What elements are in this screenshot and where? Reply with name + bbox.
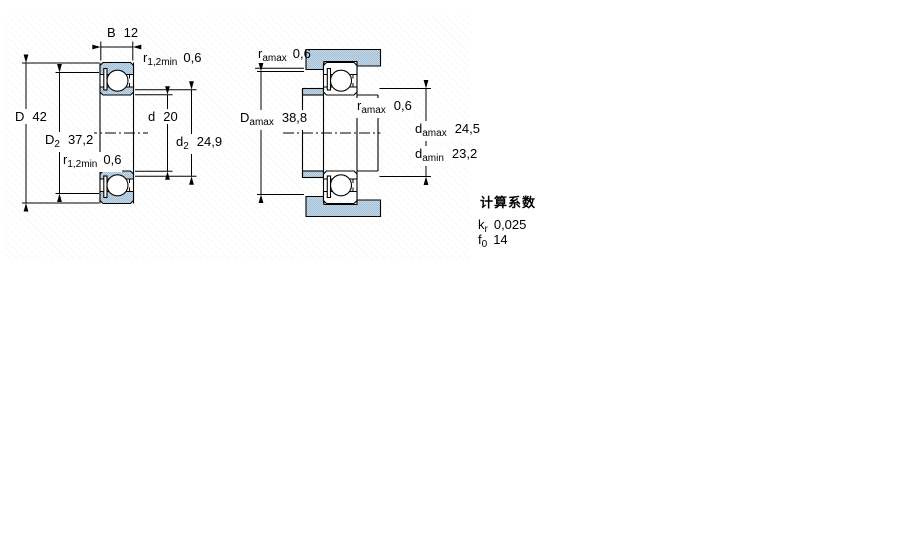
dim-value: 24,9 (197, 134, 222, 149)
dim-d-label: d20 (147, 109, 179, 124)
dim-value: 20 (163, 109, 177, 124)
calculation-factors-title: 计算系数 (479, 195, 537, 210)
shaft-shoulder-top (303, 89, 324, 96)
dim-value: 0,6 (394, 98, 412, 113)
factor-subscript: 0 (482, 239, 488, 250)
dim-damax-label: damax24,5 (414, 121, 481, 141)
dim-value: 0,6 (183, 50, 201, 65)
dim-value: 37,2 (68, 132, 93, 147)
dim-subscript: amax (422, 128, 446, 139)
ball-bottom (107, 175, 128, 196)
dim-subscript: amin (422, 153, 444, 164)
dim-subscript: amax (262, 53, 286, 64)
dim-r12min-mid-label: r1,2min0,6 (62, 152, 122, 172)
factor-value: 0,025 (494, 217, 527, 232)
drawing-linework (0, 0, 900, 560)
dim-subscript: 2 (183, 141, 189, 152)
dim-value: 23,2 (452, 146, 477, 161)
dim-damin-label: damin23,2 (414, 146, 478, 166)
dim-symbol: D (15, 109, 24, 124)
factor-value: 14 (493, 232, 507, 247)
dim-symbol: D (45, 132, 54, 147)
ball-top (107, 70, 128, 91)
dim-symbol: d (148, 109, 155, 124)
dim-D-label: D42 (14, 109, 48, 124)
dim-r12min-top-label: r1,2min0,6 (142, 50, 202, 70)
dim-subscript: 2 (54, 139, 60, 150)
dim-b-label: B12 (106, 25, 139, 40)
dim-subscript: amax (361, 105, 385, 116)
dim-d2-label: d224,9 (175, 134, 223, 154)
dim-value: 0,6 (293, 46, 311, 61)
dim-subscript: 1,2min (67, 159, 97, 170)
dim-Damax-label: Damax38,8 (239, 110, 308, 130)
dim-value: 38,8 (282, 110, 307, 125)
shaft-shoulder-bottom (303, 171, 324, 178)
shield-bottom (104, 176, 107, 198)
dim-value: 42 (32, 109, 46, 124)
dim-value: 0,6 (103, 152, 121, 167)
dim-ramax-mid-label: ramax0,6 (356, 98, 413, 118)
dim-value: 24,5 (455, 121, 480, 136)
bearing-dimension-drawing: B12 r1,2min0,6 D42 D237,2 r1,2min0,6 d20… (0, 0, 900, 560)
dim-ramax-top-label: ramax0,6 (257, 46, 312, 66)
dim-subscript: 1,2min (147, 57, 177, 68)
dim-subscript: amax (249, 117, 273, 128)
dim-symbol: B (107, 25, 116, 40)
factor-f0: f014 (477, 232, 509, 252)
dim-D2-label: D237,2 (44, 132, 94, 152)
dim-symbol: D (240, 110, 249, 125)
shield-top (104, 69, 107, 91)
dim-value: 12 (124, 25, 138, 40)
